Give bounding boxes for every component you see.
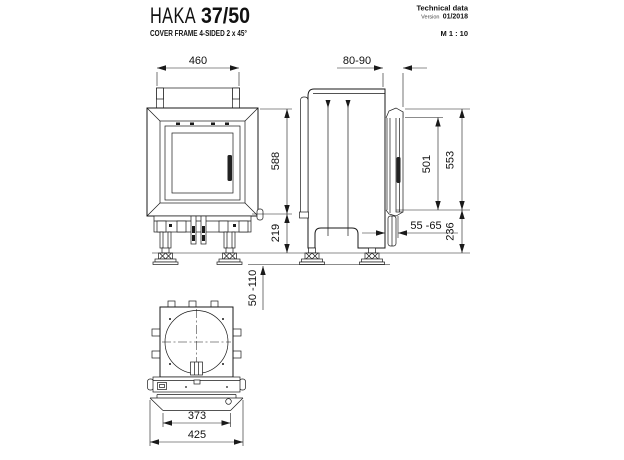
technical-data-label: Technical data [416,4,468,13]
dim-base-height: 219 [270,214,287,253]
page-title-size: 37/50 [201,3,250,28]
adjustable-foot [153,248,178,265]
version-label: Version [421,15,439,21]
dim-inner-width: 373 [163,410,231,427]
dim-foot-range: 50 -110 [247,266,263,310]
dim-outer-width-label: 425 [188,429,206,441]
bottom-view [148,301,246,411]
dim-side-base: 236 [445,210,463,253]
detail-hole [226,399,232,405]
dim-door-height: 501 [405,118,443,211]
side-frame-assembly [386,108,403,246]
bottom-bracket [191,362,203,375]
page-title-model: HAKA [150,3,196,28]
front-air-lever [257,209,263,220]
dim-frame-depth-range-label: 55 -65 [410,220,441,232]
dim-side-base-label: 236 [445,222,457,240]
dim-door-height-label: 501 [421,155,433,173]
front-door-handle [228,155,233,181]
version-value: 01/2018 [443,14,468,21]
dim-side-height-label: 553 [445,151,457,169]
bottom-frame-strip [150,395,243,411]
dim-inner-width-label: 373 [188,410,206,422]
dim-side-height: 553 [396,109,470,210]
dim-front-width: 460 [157,55,239,86]
side-view [300,89,404,265]
adjustable-foot [217,248,242,265]
dim-base-height-label: 219 [270,224,282,242]
side-body [308,89,385,248]
side-left-flange [301,97,309,215]
front-view [147,88,263,265]
side-door-handle [397,157,401,183]
scale-label: M 1 : 10 [440,29,468,38]
front-legs [160,232,235,248]
front-collar [157,88,240,110]
dim-front-width-label: 460 [189,55,207,67]
dim-depth-range-label: 80-90 [343,55,371,67]
dim-foot-range-label: 50 -110 [247,270,259,307]
datasheet-page: HAKA 37/50 COVER FRAME 4-SIDED 2 x 45° T… [0,0,624,460]
adjustable-foot [300,248,325,265]
title-block: HAKA 37/50 COVER FRAME 4-SIDED 2 x 45° T… [150,3,469,38]
page-subtitle: COVER FRAME 4-SIDED 2 x 45° [150,29,247,38]
adjustable-foot [360,248,385,265]
technical-drawing: HAKA 37/50 COVER FRAME 4-SIDED 2 x 45° T… [0,0,624,460]
dim-frame-height-label: 588 [270,152,282,170]
